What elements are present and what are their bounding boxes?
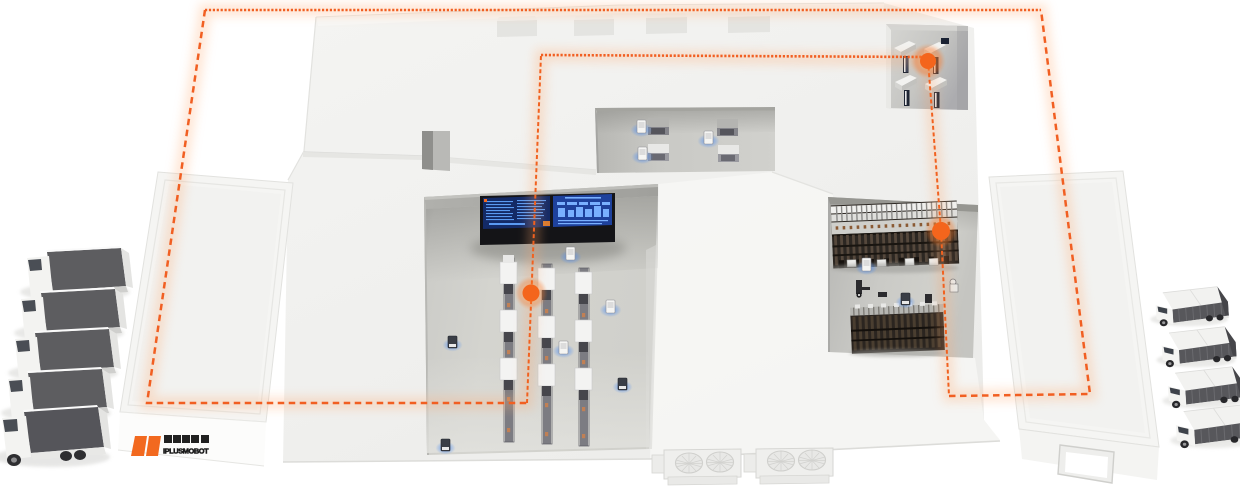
svg-text:IPLUSMOBOT: IPLUSMOBOT (163, 447, 209, 456)
